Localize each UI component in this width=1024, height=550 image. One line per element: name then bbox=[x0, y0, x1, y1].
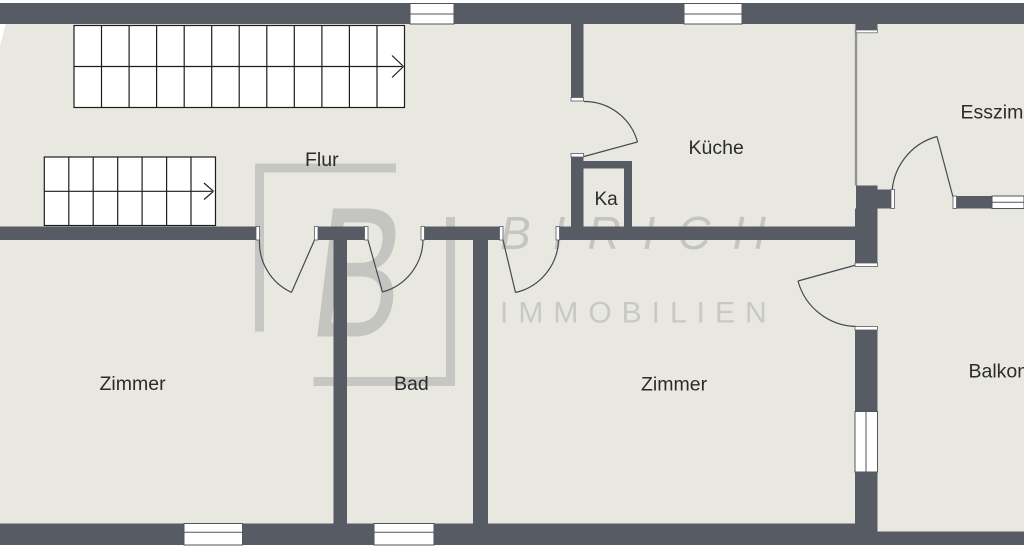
svg-text:IMMOBILIEN: IMMOBILIEN bbox=[500, 297, 777, 330]
svg-text:Küche: Küche bbox=[689, 137, 744, 159]
svg-text:Zimmer: Zimmer bbox=[100, 373, 167, 395]
svg-text:Zimmer: Zimmer bbox=[641, 374, 708, 396]
svg-text:Flur: Flur bbox=[305, 149, 339, 171]
svg-text:Ka: Ka bbox=[595, 189, 619, 210]
svg-text:Balkon: Balkon bbox=[969, 361, 1024, 383]
svg-text:Bad: Bad bbox=[394, 373, 429, 395]
svg-text:Esszimmer: Esszimmer bbox=[961, 102, 1024, 124]
